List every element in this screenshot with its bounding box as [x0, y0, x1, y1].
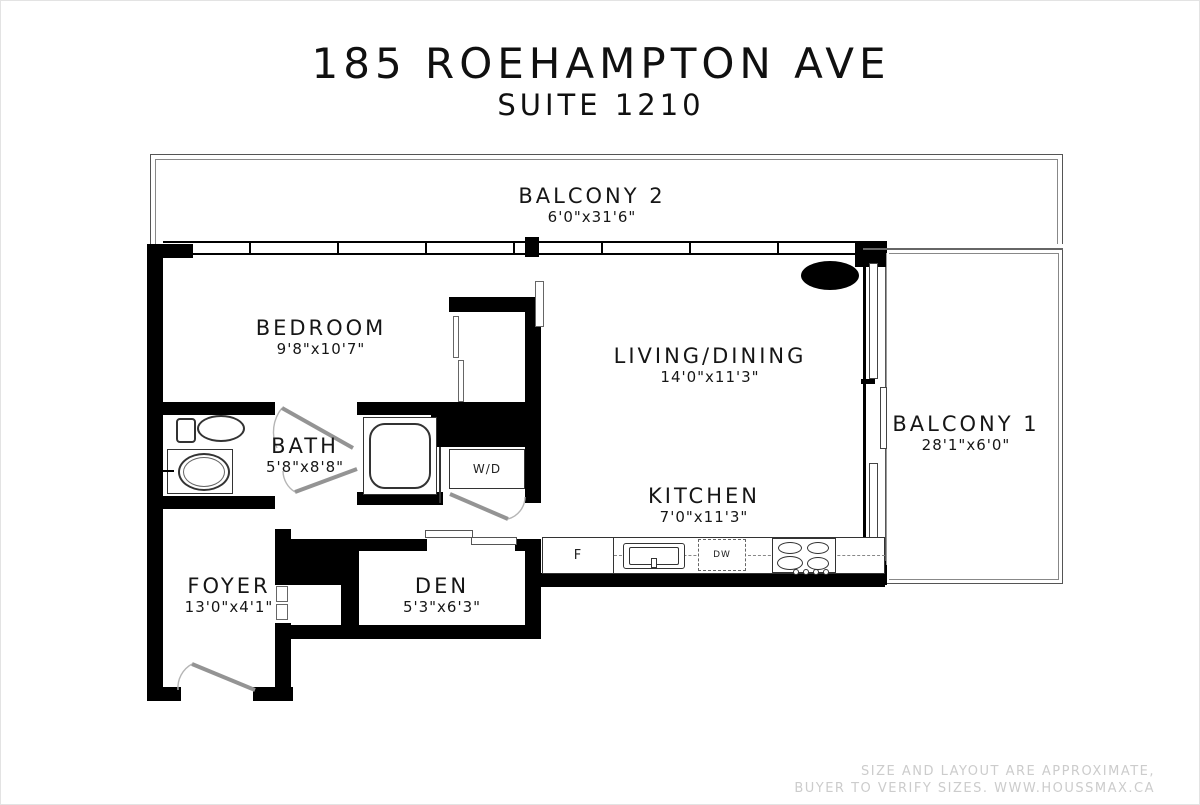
wall-bath-south-a: [163, 496, 275, 509]
window-wall-east-line: [863, 251, 866, 566]
sink-basin-inner: [183, 457, 225, 487]
wall-kitchen-south: [541, 573, 885, 587]
wall-foyer-east-top: [275, 529, 291, 585]
window-wall-north: [163, 241, 865, 255]
entry-door: [178, 664, 255, 690]
foyer-name: FOYER: [185, 575, 274, 599]
bath-name: BATH: [266, 435, 344, 459]
room-label-balcony-1: BALCONY 1 28'1"x6'0": [892, 413, 1039, 453]
den-sliding-panel-b: [471, 537, 517, 545]
sink-faucet-icon: [160, 470, 174, 472]
foyer-closet-door-tick-b: [276, 604, 288, 620]
closet-sliding-panel-b: [458, 360, 464, 402]
living-dining-dims: 14'0"x11'3": [614, 369, 807, 386]
stove-burner-tl: [778, 542, 802, 554]
fridge: F: [542, 537, 614, 574]
duct-column: [535, 281, 544, 327]
balcony-divider-line: [863, 248, 1063, 250]
balcony-1-name: BALCONY 1: [892, 413, 1039, 437]
room-label-bath: BATH 5'8"x8'8": [266, 435, 344, 475]
table-ellipse: [801, 261, 859, 290]
stove-knob-3: [813, 569, 819, 575]
wall-den-west: [341, 539, 359, 639]
kitchen-faucet: [651, 558, 657, 568]
wall-den-south: [275, 625, 541, 639]
sliding-door-panel-balcony: [880, 387, 887, 449]
window-pane-upper: [869, 263, 878, 379]
foyer-dims: 13'0"x4'1": [185, 599, 274, 616]
window-mullions: [163, 243, 865, 253]
wall-west: [147, 244, 163, 701]
toilet-tank: [176, 418, 196, 443]
closet-sliding-panel-a: [453, 316, 459, 358]
watermark: SIZE AND LAYOUT ARE APPROXIMATE, BUYER T…: [794, 764, 1155, 798]
room-label-den: DEN 5'3"x6'3": [403, 575, 481, 615]
bedroom-dims: 9'8"x10'7": [256, 341, 387, 358]
washer-dryer-unit: W/D: [449, 449, 525, 489]
room-label-balcony-2: BALCONY 2 6'0"x31'6": [518, 185, 665, 225]
wall-northwest-stub: [147, 244, 193, 258]
stove-knob-4: [823, 569, 829, 575]
laundry-door: [450, 494, 525, 519]
wall-foyer-closet-top-block: [291, 539, 343, 585]
fridge-label: F: [574, 548, 582, 563]
stove-burner-bl: [777, 556, 803, 570]
address-title: 185 ROEHAMPTON AVE: [1, 41, 1200, 86]
living-dining-name: LIVING/DINING: [614, 345, 807, 369]
laundry-closet-side-line: [439, 447, 441, 503]
stove-burner-tr: [807, 542, 829, 554]
den-dims: 5'3"x6'3": [403, 599, 481, 616]
balcony-2-name: BALCONY 2: [518, 185, 665, 209]
room-label-foyer: FOYER 13'0"x4'1": [185, 575, 274, 615]
den-sliding-panel-a: [425, 530, 473, 538]
den-name: DEN: [403, 575, 481, 599]
wall-bath-north-b: [357, 402, 541, 415]
wall-bath-north-a: [163, 402, 275, 415]
window-wall-east-tick: [861, 379, 875, 384]
wall-kitchen-west: [525, 541, 541, 635]
room-label-kitchen: KITCHEN 7'0"x11'3": [648, 485, 760, 525]
bath-dims: 5'8"x8'8": [266, 459, 344, 476]
dishwasher-label: DW: [713, 550, 731, 560]
kitchen-name: KITCHEN: [648, 485, 760, 509]
watermark-line-2: BUYER TO VERIFY SIZES. WWW.HOUSSMAX.CA: [794, 781, 1155, 798]
watermark-line-1: SIZE AND LAYOUT ARE APPROXIMATE,: [794, 764, 1155, 781]
room-label-bedroom: BEDROOM 9'8"x10'7": [256, 317, 387, 357]
toilet-bowl: [197, 415, 245, 442]
dishwasher: DW: [698, 539, 746, 571]
stove-knob-2: [803, 569, 809, 575]
balcony-2-dims: 6'0"x31'6": [518, 209, 665, 226]
wall-entry-south-a: [147, 687, 181, 701]
foyer-closet-door-tick-a: [276, 586, 288, 602]
wall-entry-south-b: [253, 687, 293, 701]
floorplan-canvas: 185 ROEHAMPTON AVE SUITE 1210: [0, 0, 1200, 805]
room-label-living-dining: LIVING/DINING 14'0"x11'3": [614, 345, 807, 385]
suite-subtitle: SUITE 1210: [1, 90, 1200, 121]
plan-title: 185 ROEHAMPTON AVE SUITE 1210: [1, 41, 1200, 122]
bedroom-name: BEDROOM: [256, 317, 387, 341]
balcony-1-dims: 28'1"x6'0": [892, 437, 1039, 454]
wall-den-north-a: [357, 539, 427, 551]
stove-knob-1: [793, 569, 799, 575]
kitchen-dims: 7'0"x11'3": [648, 509, 760, 526]
wall-laundry-top-block: [431, 415, 541, 447]
bathtub-inner: [369, 423, 431, 489]
wall-laundry-right: [525, 447, 541, 503]
washer-dryer-label: W/D: [473, 462, 501, 476]
wall-window-tick: [525, 237, 539, 257]
